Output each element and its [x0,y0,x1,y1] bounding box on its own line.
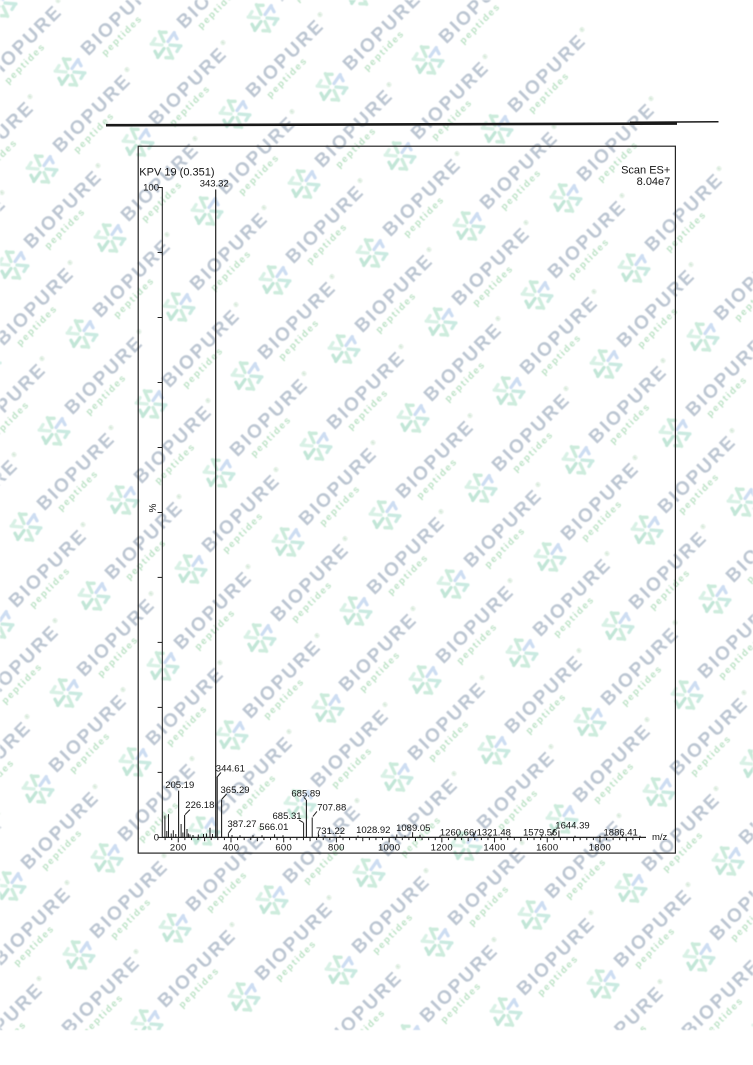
svg-text:1260.66: 1260.66 [440,827,474,838]
svg-text:1886.41: 1886.41 [604,827,638,838]
svg-text:800: 800 [328,842,345,853]
svg-text:685.89: 685.89 [291,788,320,799]
svg-text:1600: 1600 [536,842,558,853]
svg-text:731.22: 731.22 [316,826,345,837]
svg-text:%: % [148,503,159,512]
svg-text:600: 600 [275,842,292,853]
svg-text:1644.39: 1644.39 [555,821,589,832]
svg-text:1200: 1200 [431,842,453,853]
svg-text:1800: 1800 [589,842,611,853]
svg-text:Scan ES+: Scan ES+ [621,164,670,176]
svg-text:387.27: 387.27 [228,819,257,830]
svg-text:100: 100 [143,183,159,194]
svg-text:1400: 1400 [483,842,505,853]
svg-text:1000: 1000 [378,842,400,853]
svg-text:566.01: 566.01 [259,822,288,833]
svg-text:226.18: 226.18 [185,800,214,811]
svg-text:1579.56: 1579.56 [523,827,557,838]
svg-text:1028.92: 1028.92 [356,825,390,836]
svg-text:8.04e7: 8.04e7 [637,176,671,188]
svg-text:343.32: 343.32 [200,178,229,189]
svg-text:365.29: 365.29 [221,785,250,796]
svg-text:685.31: 685.31 [273,811,302,822]
svg-text:344.61: 344.61 [216,763,245,774]
svg-text:1321.48: 1321.48 [477,827,511,838]
svg-text:200: 200 [170,842,187,853]
svg-text:1089.05: 1089.05 [396,823,430,834]
svg-text:400: 400 [223,842,240,853]
svg-text:0: 0 [154,833,159,844]
svg-text:205.19: 205.19 [165,780,194,791]
svg-text:707.88: 707.88 [317,802,346,813]
svg-text:m/z: m/z [652,832,668,843]
svg-text:KPV 19 (0.351): KPV 19 (0.351) [139,167,214,179]
